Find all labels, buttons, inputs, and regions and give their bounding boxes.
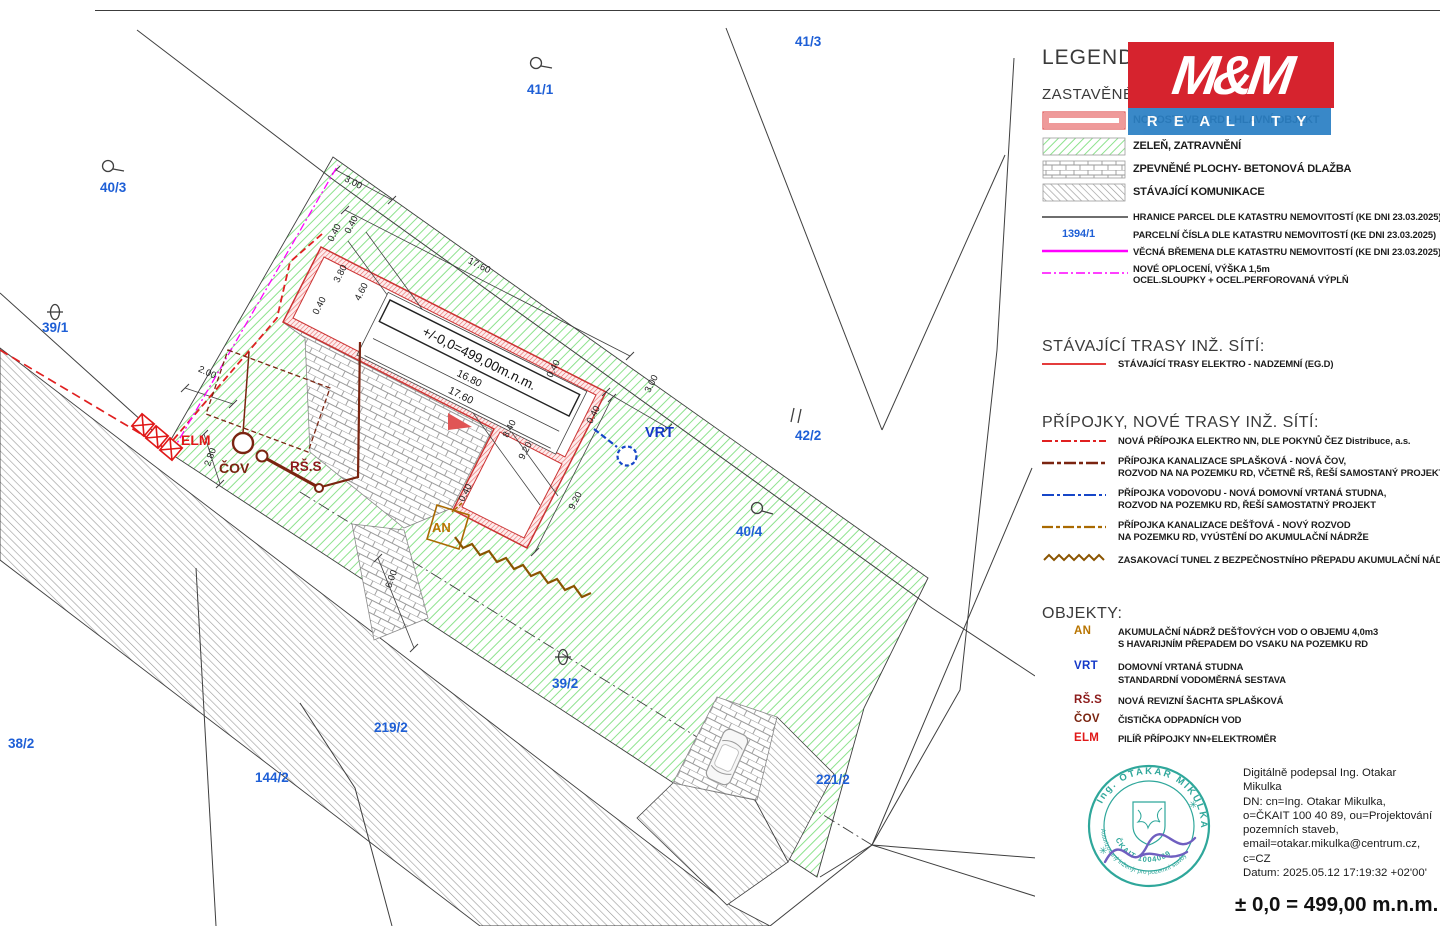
vrt-label: VRT	[645, 425, 674, 441]
new-item-label2: NA POZEMKU RD, VYÚSTĚNÍ DO AKUMULAČNÍ NÁ…	[1118, 531, 1369, 542]
mm-reality-logo-bar: R E A L I T Y	[1128, 108, 1331, 135]
parcel-label: 41/1	[527, 82, 554, 97]
swatch-zigzag	[1042, 552, 1106, 564]
line-item-label: VĚCNÁ BŘEMENA DLE KATASTRU NEMOVITOSTÍ (…	[1133, 246, 1440, 257]
object-abbr-elm: ELM	[1074, 732, 1099, 744]
cov-label: ČOV	[219, 459, 250, 476]
swatch-rainwater	[1042, 523, 1106, 531]
parcel-number-sample: 1394/1	[1062, 228, 1095, 240]
objects-header: OBJEKTY:	[1042, 605, 1122, 623]
stamp-crest	[1133, 802, 1165, 845]
object-abbr-rss: RŠ.S	[1074, 694, 1102, 706]
swatch-boundary-line	[1042, 213, 1128, 221]
area-item-label: ZPEVNĚNÉ PLOCHY- BETONOVÁ DLAŽBA	[1133, 163, 1351, 175]
line-item-label: PARCELNÍ ČÍSLA DLE KATASTRU NEMOVITOSTÍ …	[1133, 229, 1436, 240]
line-item-label: HRANICE PARCEL DLE KATASTRU NEMOVITOSTÍ …	[1133, 211, 1440, 222]
new-item-label2: ROZVOD NA NA POZEMKU RD, VČETNĚ RŠ, ŘEŠÍ…	[1118, 467, 1440, 478]
object-desc: AKUMULAČNÍ NÁDRŽ DEŠŤOVÝCH VOD O OBJEMU …	[1118, 626, 1378, 637]
logo-mm-text: M&M	[1169, 48, 1293, 103]
elm-label: ELM	[181, 432, 211, 448]
elevation-datum: ± 0,0 = 499,00 m.n.m.	[1235, 893, 1438, 917]
swatch-fence-line	[1042, 269, 1128, 277]
an-label: AN	[432, 520, 451, 535]
new-item-label: NOVÁ PŘÍPOJKA ELEKTRO NN, DLE POKYNŮ ČEZ…	[1118, 435, 1410, 446]
swatch-existing-electro	[1042, 360, 1106, 368]
fence-label-line1: NOVÉ OPLOCENÍ, VÝŠKA 1,5m	[1133, 263, 1270, 274]
swatch-paving	[1042, 160, 1126, 179]
parcel-label: 41/3	[795, 34, 822, 49]
parcel-label: 40/3	[100, 180, 127, 195]
mm-reality-logo: M&M	[1128, 42, 1334, 108]
site-plan-sheet: +/-0,0=499,00m.n.m. 16.80 17.60	[0, 0, 1440, 926]
existing-electro-label: STÁVAJÍCÍ TRASY ELEKTRO - NADZEMNÍ (EG.D…	[1118, 358, 1333, 369]
object-desc: DOMOVNÍ VRTANÁ STUDNA	[1118, 661, 1243, 672]
swatch-sewage	[1042, 459, 1106, 467]
swatch-new-electro	[1042, 437, 1106, 445]
parcel-label: 38/2	[8, 736, 34, 751]
area-item-label: ZELEŇ, ZATRAVNĚNÍ	[1133, 140, 1241, 152]
parcel-label: 39/1	[42, 320, 69, 335]
object-abbr-vrt: VRT	[1074, 660, 1098, 672]
parcel-label: 219/2	[374, 720, 408, 735]
existing-utilities-header: STÁVAJÍCÍ TRASY INŽ. SÍTÍ:	[1042, 338, 1265, 356]
new-item-label2: ROZVOD NA POZEMKU RD, ŘEŠÍ SAMOSTATNÝ PR…	[1118, 499, 1376, 510]
parcel-label: 42/2	[795, 428, 821, 443]
object-desc2: STANDARDNÍ VODOMĚRNÁ SESTAVA	[1118, 674, 1286, 685]
object-abbr-an: AN	[1074, 625, 1091, 637]
rss-label: RŠ.S	[290, 459, 322, 474]
object-desc: PILÍŘ PŘÍPOJKY NN+ELEKTROMĚR	[1118, 733, 1276, 744]
parcel-label: 144/2	[255, 770, 289, 785]
stamp-asterisk-left: ✳	[1099, 846, 1107, 857]
swatch-road	[1042, 183, 1126, 202]
vrt-well	[618, 447, 637, 466]
fence-label-line2: OCEL.SLOUPKY + OCEL.PERFOROVANÁ VÝPLŇ	[1133, 274, 1349, 285]
object-desc2: S HAVARIJNÍM PŘEPADEM DO VSAKU NA POZEMK…	[1118, 638, 1368, 649]
site-plan-drawing: +/-0,0=499,00m.n.m. 16.80 17.60	[0, 0, 1035, 926]
swatch-new-building	[1042, 111, 1126, 130]
parcel-label: 221/2	[816, 772, 850, 787]
new-item-label: PŘÍPOJKA KANALIZACE SPLAŠKOVÁ - NOVÁ ČOV…	[1118, 455, 1346, 466]
new-item-label: ZASAKOVACÍ TUNEL Z BEZPEČNOSTNÍHO PŘEPAD…	[1118, 554, 1440, 565]
new-utilities-header: PŘÍPOJKY, NOVÉ TRASY INŽ. SÍTÍ:	[1042, 414, 1319, 432]
new-item-label: PŘÍPOJKA KANALIZACE DEŠŤOVÁ - NOVÝ ROZVO…	[1118, 519, 1351, 530]
parcel-label: 39/2	[552, 676, 578, 691]
logo-reality-text: R E A L I T Y	[1147, 113, 1313, 130]
swatch-water	[1042, 491, 1106, 499]
authorization-stamp: Ing. OTAKAR MIKULKA Autorizovaný inženýr…	[1083, 760, 1215, 892]
swatch-lawn	[1042, 137, 1126, 156]
stamp-name-arc: Ing. OTAKAR MIKULKA	[1095, 766, 1209, 830]
object-abbr-cov: ČOV	[1074, 713, 1100, 725]
object-desc: NOVÁ REVIZNÍ ŠACHTA SPLAŠKOVÁ	[1118, 695, 1283, 706]
swatch-easement-line	[1042, 247, 1128, 255]
parcel-label: 40/4	[736, 524, 763, 539]
digital-signature-text: Digitálně podepsal Ing. Otakar Mikulka D…	[1243, 766, 1440, 880]
new-item-label: PŘÍPOJKA VODOVODU - NOVÁ DOMOVNÍ VRTANÁ …	[1118, 487, 1386, 498]
object-desc: ČISTIČKA ODPADNÍCH VOD	[1118, 714, 1241, 725]
svg-text:Ing. OTAKAR MIKULKA: Ing. OTAKAR MIKULKA	[1095, 766, 1209, 830]
area-item-label: STÁVAJÍCÍ KOMUNIKACE	[1133, 186, 1264, 198]
stamp-asterisk-right: ✳	[1189, 800, 1197, 811]
